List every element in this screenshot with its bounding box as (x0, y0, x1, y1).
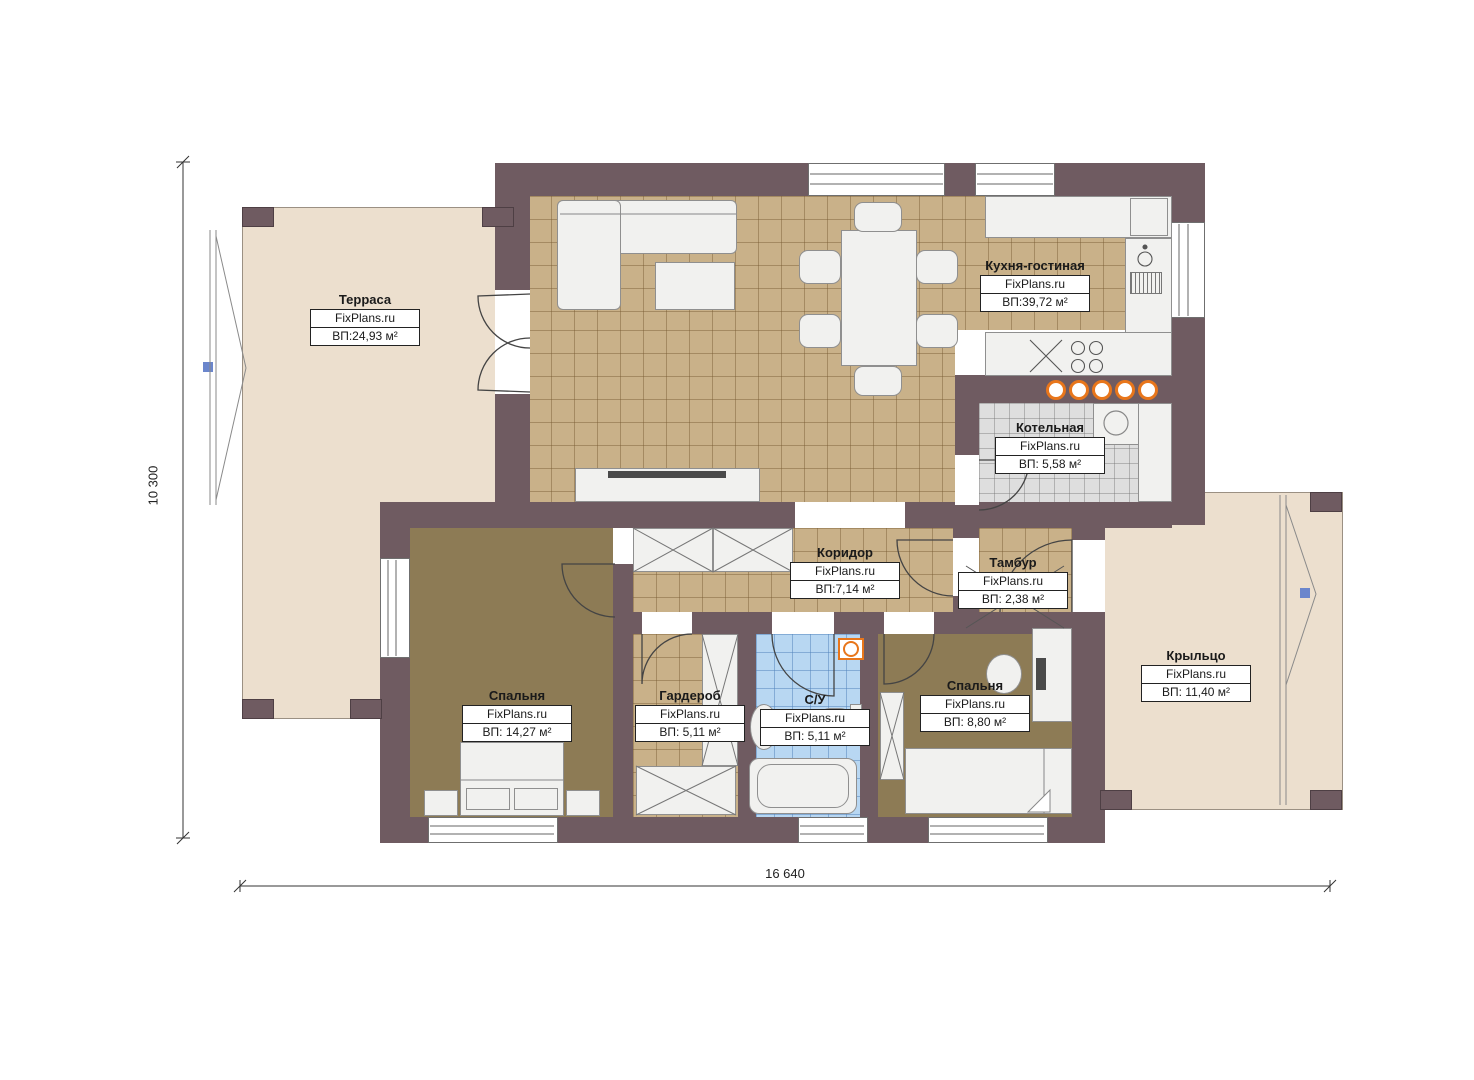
window-south-bedroom2 (928, 817, 1048, 843)
room-label-bedroom1: Спальня FixPlans.ru ВП: 14,27 м² (462, 688, 572, 742)
floor-plan-canvas: Терраса FixPlans.ru ВП:24,93 м² Кухня-го… (0, 0, 1474, 1080)
hall-closet (713, 528, 793, 572)
dining-chair (916, 250, 958, 284)
opening-wardrobe-door (642, 612, 692, 634)
nightstand (424, 790, 458, 816)
wall-mid (380, 502, 1172, 528)
room-area: ВП: 5,11 м² (636, 723, 744, 741)
dining-chair (854, 202, 902, 232)
window-north-kitchen (975, 163, 1055, 196)
wall-bedroom1-east (613, 528, 633, 843)
kitchen-counter-island (985, 332, 1172, 376)
brand-watermark: FixPlans.ru (463, 706, 571, 723)
wall-west-lower (380, 502, 410, 843)
dimension-line-height (176, 156, 190, 844)
nightstand (566, 790, 600, 816)
terrace-pier-se (350, 699, 382, 719)
bathtub-basin (757, 764, 849, 808)
brand-watermark: FixPlans.ru (791, 563, 899, 580)
room-name: Тамбур (958, 555, 1068, 570)
dimension-height-label: 10 300 (146, 456, 161, 516)
terrace-glazing-triangle (210, 230, 246, 505)
dining-chair (799, 250, 841, 284)
opening-entry-door (1072, 540, 1105, 612)
room-label-bathroom: С/У FixPlans.ru ВП: 5,11 м² (760, 692, 870, 746)
room-info-box: FixPlans.ru ВП: 5,11 м² (635, 705, 745, 742)
room-name: Кухня-гостиная (980, 258, 1090, 273)
monitor (1036, 658, 1046, 690)
room-label-porch: Крыльцо FixPlans.ru ВП: 11,40 м² (1141, 648, 1251, 702)
fridge (1130, 198, 1168, 236)
room-info-box: FixPlans.ru ВП:39,72 м² (980, 275, 1090, 312)
room-name: Спальня (920, 678, 1030, 693)
bed-pillow (466, 788, 510, 810)
room-info-box: FixPlans.ru ВП:24,93 м² (310, 309, 420, 346)
bed-pillow (514, 788, 558, 810)
brand-watermark: FixPlans.ru (996, 438, 1104, 455)
terrace-glazing-marker (203, 362, 213, 372)
terrace-pier-nw (242, 207, 274, 227)
room-area: ВП: 14,27 м² (463, 723, 571, 741)
boiler-counter (1138, 403, 1172, 502)
room-label-kitchen-living: Кухня-гостиная FixPlans.ru ВП:39,72 м² (980, 258, 1090, 312)
room-name: Коридор (790, 545, 900, 560)
room-name: Котельная (995, 420, 1105, 435)
opening-bedroom1-door (613, 528, 633, 564)
room-name: Спальня (462, 688, 572, 703)
brand-watermark: FixPlans.ru (311, 310, 419, 327)
room-area: ВП:7,14 м² (791, 580, 899, 598)
terrace-pier-sw (242, 699, 274, 719)
brand-watermark: FixPlans.ru (921, 696, 1029, 713)
bar-stool (1115, 380, 1135, 400)
room-info-box: FixPlans.ru ВП: 5,58 м² (995, 437, 1105, 474)
opening-bedroom2-door (884, 612, 934, 634)
room-info-box: FixPlans.ru ВП: 14,27 м² (462, 705, 572, 742)
room-label-corridor: Коридор FixPlans.ru ВП:7,14 м² (790, 545, 900, 599)
room-name: Крыльцо (1141, 648, 1251, 663)
window-south-bedroom1 (428, 817, 558, 843)
bedroom2-bed (905, 748, 1072, 814)
brand-watermark: FixPlans.ru (959, 573, 1067, 590)
bar-stool (1138, 380, 1158, 400)
dimension-width-label: 16 640 (745, 866, 825, 881)
room-info-box: FixPlans.ru ВП: 11,40 м² (1141, 665, 1251, 702)
bar-stool (1092, 380, 1112, 400)
dishwasher (1130, 272, 1162, 294)
room-info-box: FixPlans.ru ВП:7,14 м² (790, 562, 900, 599)
room-info-box: FixPlans.ru ВП: 5,11 м² (760, 709, 870, 746)
room-name: С/У (760, 692, 870, 707)
brand-watermark: FixPlans.ru (1142, 666, 1250, 683)
hall-closet (633, 528, 713, 572)
opening-living-corridor (795, 502, 905, 528)
room-name: Терраса (310, 292, 420, 307)
brand-watermark: FixPlans.ru (981, 276, 1089, 293)
opening-terrace-door (495, 290, 530, 394)
porch-glazing-marker (1300, 588, 1310, 598)
room-area: ВП: 5,58 м² (996, 455, 1104, 473)
washing-machine (838, 638, 864, 660)
room-area: ВП: 11,40 м² (1142, 683, 1250, 701)
window-south-bathroom (798, 817, 868, 843)
room-area: ВП: 2,38 м² (959, 590, 1067, 608)
porch-pier-se (1310, 790, 1342, 810)
room-area: ВП: 8,80 м² (921, 713, 1029, 731)
room-label-wardrobe: Гардероб FixPlans.ru ВП: 5,11 м² (635, 688, 745, 742)
room-info-box: FixPlans.ru ВП: 8,80 м² (920, 695, 1030, 732)
porch-pier-sw (1100, 790, 1132, 810)
room-info-box: FixPlans.ru ВП: 2,38 м² (958, 572, 1068, 609)
room-label-boiler: Котельная FixPlans.ru ВП: 5,58 м² (995, 420, 1105, 474)
dining-chair (854, 366, 902, 396)
bar-stool (1046, 380, 1066, 400)
room-area: ВП: 5,11 м² (761, 727, 869, 745)
bar-stool (1069, 380, 1089, 400)
room-area: ВП:39,72 м² (981, 293, 1089, 311)
tv (608, 471, 726, 478)
window-north-dining (808, 163, 945, 196)
window-east-kitchen (1170, 222, 1205, 318)
room-area: ВП:24,93 м² (311, 327, 419, 345)
wall-corridor-south (633, 612, 1072, 634)
brand-watermark: FixPlans.ru (636, 706, 744, 723)
room-label-bedroom2: Спальня FixPlans.ru ВП: 8,80 м² (920, 678, 1030, 732)
dining-chair (916, 314, 958, 348)
dining-table (841, 230, 917, 366)
room-label-vestibule: Тамбур FixPlans.ru ВП: 2,38 м² (958, 555, 1068, 609)
opening-bathroom-door (772, 612, 834, 634)
porch-pier-ne (1310, 492, 1342, 512)
opening-boiler-door (955, 455, 979, 505)
dimension-line-width (234, 880, 1336, 892)
terrace-pier-ne (482, 207, 514, 227)
wall-east-upper (1170, 163, 1205, 525)
dining-chair (799, 314, 841, 348)
wardrobe-cabinet-south (636, 766, 736, 815)
sofa-chaise (557, 200, 621, 310)
bedroom2-closet (880, 692, 904, 780)
room-name: Гардероб (635, 688, 745, 703)
room-label-terrace: Терраса FixPlans.ru ВП:24,93 м² (310, 292, 420, 346)
window-west-bedroom1 (380, 558, 410, 658)
coffee-table (655, 262, 735, 310)
brand-watermark: FixPlans.ru (761, 710, 869, 727)
